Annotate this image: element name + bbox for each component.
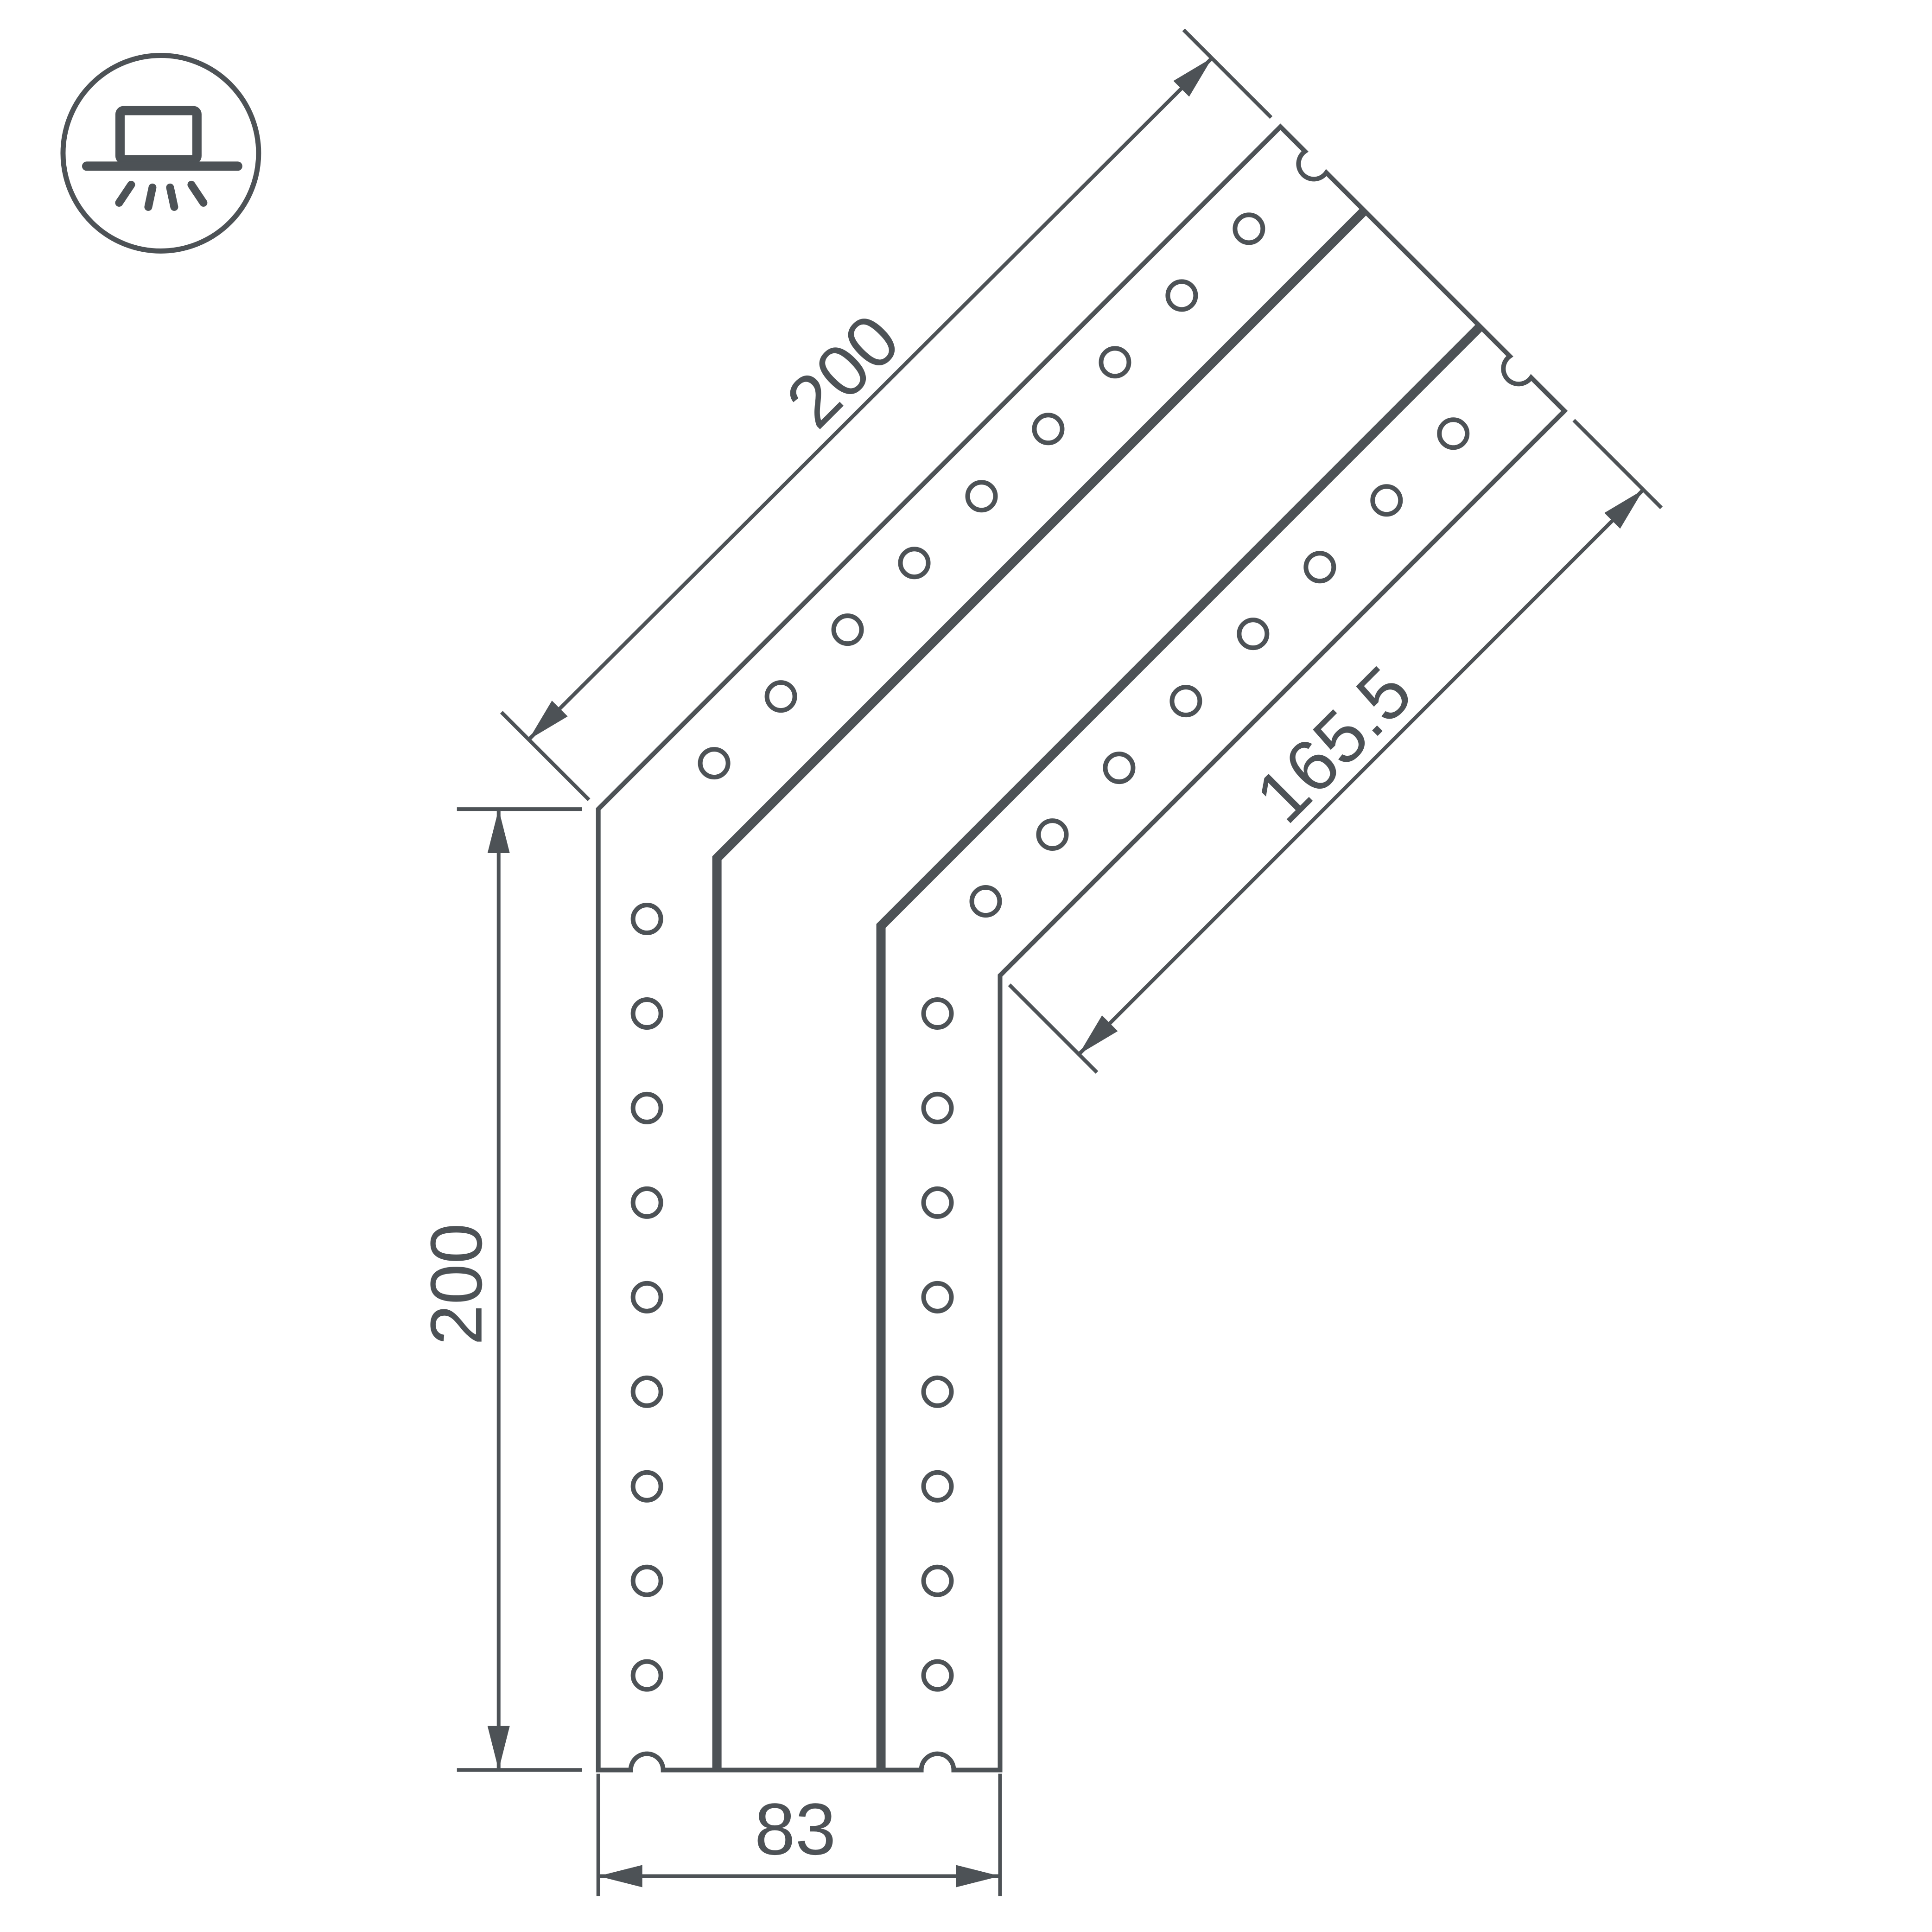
icon-circle bbox=[63, 55, 258, 251]
dimension-vertical-200: 200 bbox=[415, 809, 582, 1770]
profile-outline bbox=[598, 127, 1564, 1770]
dimension-label: 200 bbox=[770, 299, 915, 443]
channel-edge-left bbox=[717, 210, 1364, 1770]
drawing-page: 200 200 165.5 83 bbox=[0, 0, 1932, 1932]
extension-line bbox=[1009, 985, 1097, 1072]
dimension-drawing: 200 200 165.5 83 bbox=[0, 0, 1932, 1932]
corner-profile bbox=[598, 127, 1564, 1770]
dimension-label: 200 bbox=[415, 1223, 497, 1345]
dimension-label: 83 bbox=[754, 1789, 836, 1870]
arrowhead-down bbox=[487, 1726, 509, 1770]
dimension-label: 165.5 bbox=[1240, 651, 1427, 838]
surface-mount-light-icon bbox=[63, 55, 258, 251]
arrowhead-left bbox=[598, 1865, 642, 1887]
dimension-inner-165-5: 165.5 bbox=[1009, 420, 1661, 1072]
channel-edge-right bbox=[881, 326, 1480, 1770]
extension-line bbox=[1574, 420, 1661, 508]
dimension-bottom-83: 83 bbox=[598, 1774, 1000, 1896]
arrowhead-up bbox=[487, 809, 509, 853]
light-rays bbox=[119, 185, 203, 207]
luminaire-box bbox=[120, 110, 197, 159]
arrowhead-right bbox=[956, 1865, 1000, 1887]
mounting-holes-outer-row bbox=[633, 215, 1263, 1689]
